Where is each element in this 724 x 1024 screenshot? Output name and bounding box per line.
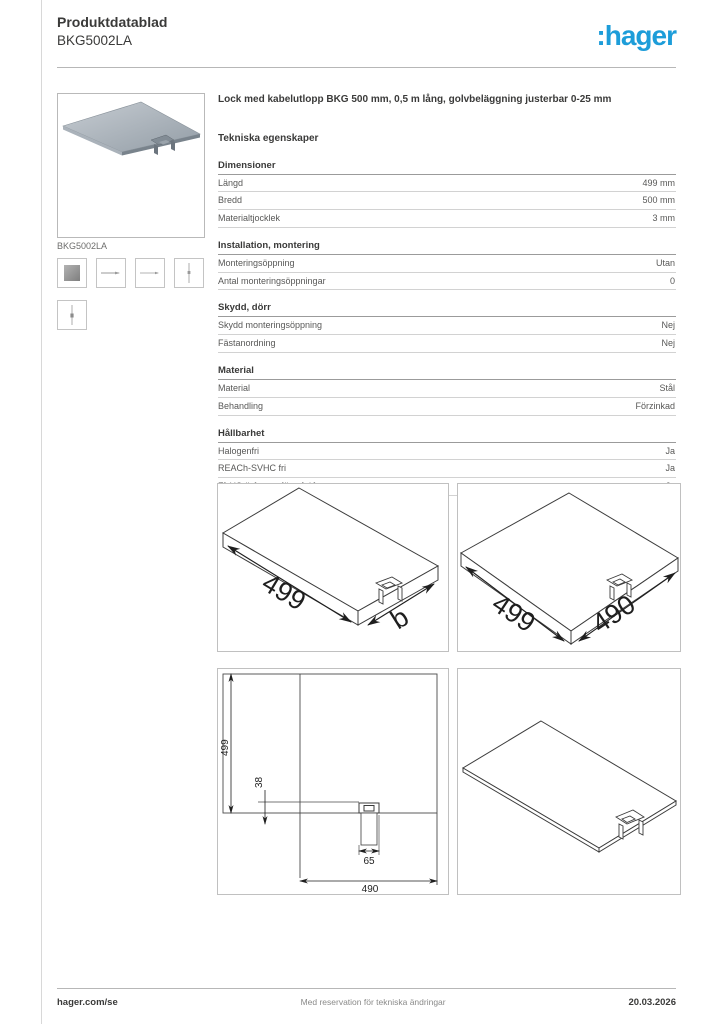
dim-b-label: b [385,602,414,635]
spec-row: Halogenfri Ja [218,443,676,461]
side-view-thumb-2[interactable] [135,258,165,288]
spec-row: Längd 499 mm [218,175,676,193]
footer-date: 20.03.2026 [628,997,676,1008]
spec-label: Halogenfri [218,446,259,457]
spec-group-name: Material [218,365,676,380]
spec-label: Bredd [218,195,242,206]
product-photo-rendering [58,94,204,237]
iso-drawing-499xb: 499 b [217,483,449,652]
page-edge-rule [41,0,42,1024]
spec-group: Skydd, dörr Skydd monteringsöppning Nej … [218,302,676,353]
hager-logo: :hager [596,20,676,52]
spec-value: Ja [665,463,675,474]
header-divider [57,67,676,68]
spec-group: Installation, montering Monteringsöppnin… [218,240,676,291]
spec-row: Monteringsöppning Utan [218,255,676,273]
spec-row: Behandling Förzinkad [218,398,676,416]
spec-group-name: Skydd, dörr [218,302,676,317]
specs-title: Tekniska egenskaper [218,133,676,144]
iso-drawing-plate [457,668,681,895]
product-photo-caption: BKG5002LA [57,241,107,251]
spec-label: Antal monteringsöppningar [218,276,326,287]
plan-drawing: 499 38 65 490 [217,668,449,895]
spec-label: Behandling [218,401,263,412]
side-view-thumb[interactable] [96,258,126,288]
product-photo [57,93,205,238]
spec-value: Förzinkad [635,401,675,412]
main-content: Lock med kabelutlopp BKG 500 mm, 0,5 m l… [218,93,676,508]
end-view-thumb-2[interactable] [57,300,87,330]
dim-499-label: 499 [220,739,231,756]
spec-value: 499 mm [642,178,675,189]
document-type: Produktdatablad [57,14,676,32]
product-id: BKG5002LA [57,32,676,50]
spec-value: Nej [661,338,675,349]
spec-label: Fästanordning [218,338,276,349]
footer-website-link[interactable]: hager.com/se [57,997,118,1008]
spec-row: REACh-SVHC fri Ja [218,460,676,478]
spec-group-name: Installation, montering [218,240,676,255]
header: Produktdatablad BKG5002LA :hager [57,14,676,49]
spec-group-name: Hållbarhet [218,428,676,443]
spec-group-rows: Material Stål Behandling Förzinkad [218,380,676,416]
spec-label: Skydd monteringsöppning [218,320,322,331]
product-photo-thumb[interactable] [57,258,87,288]
spec-row: Antal monteringsöppningar 0 [218,273,676,291]
footer: hager.com/se Med reservation för teknisk… [57,997,676,1008]
spec-label: Längd [218,178,243,189]
spec-group: Dimensioner Längd 499 mm Bredd 500 mm Ma… [218,160,676,228]
spec-value: Ja [665,446,675,457]
spec-value: Utan [656,258,675,269]
spec-group: Material Material Stål Behandling Förzin… [218,365,676,416]
end-view-thumb[interactable] [174,258,204,288]
spec-groups: Dimensioner Längd 499 mm Bredd 500 mm Ma… [218,160,676,497]
spec-row: Bredd 500 mm [218,192,676,210]
spec-value: Stål [659,383,675,394]
product-description: Lock med kabelutlopp BKG 500 mm, 0,5 m l… [218,93,676,107]
spec-group-rows: Monteringsöppning Utan Antal monteringsö… [218,255,676,291]
spec-value: Nej [661,320,675,331]
spec-group-name: Dimensioner [218,160,676,175]
spec-label: REACh-SVHC fri [218,463,286,474]
spec-row: Skydd monteringsöppning Nej [218,317,676,335]
spec-group-rows: Längd 499 mm Bredd 500 mm Materialtjockl… [218,175,676,228]
spec-row: Materialtjocklek 3 mm [218,210,676,228]
footer-divider [57,988,676,989]
datasheet-page: Produktdatablad BKG5002LA :hager BKG5002… [0,0,724,1024]
spec-row: Fästanordning Nej [218,335,676,353]
dim-490-label: 490 [362,884,379,894]
spec-label: Materialtjocklek [218,213,280,224]
footer-disclaimer: Med reservation för tekniska ändringar [301,997,446,1007]
spec-value: 500 mm [642,195,675,206]
spec-row: Material Stål [218,380,676,398]
dim-38-label: 38 [254,776,265,788]
spec-value: 3 mm [653,213,676,224]
spec-value: 0 [670,276,675,287]
spec-label: Monteringsöppning [218,258,295,269]
iso-drawing-499x490: 499 490 [457,483,681,652]
spec-group-rows: Skydd monteringsöppning Nej Fästanordnin… [218,317,676,353]
spec-label: Material [218,383,250,394]
dim-65-label: 65 [363,856,375,867]
